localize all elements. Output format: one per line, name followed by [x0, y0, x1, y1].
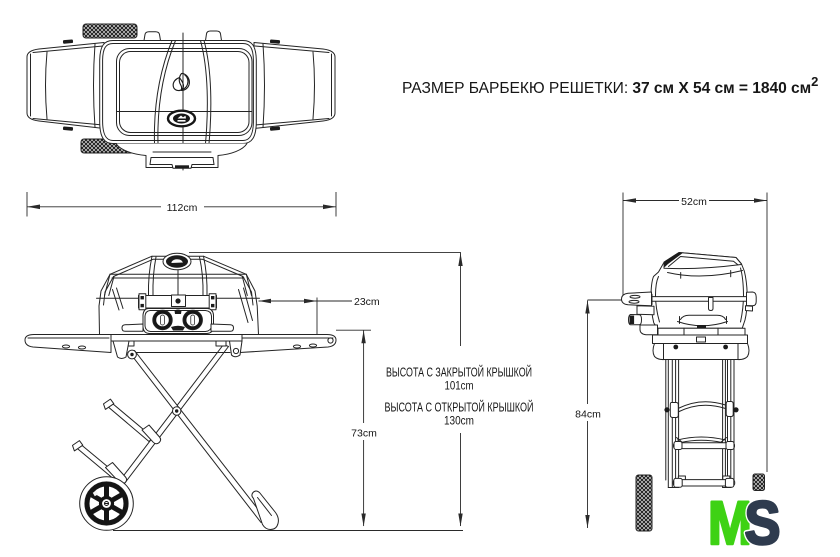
svg-text:23cm: 23cm	[354, 296, 380, 308]
svg-text:ВЫСОТА С ЗАКРЫТОЙ КРЫШКОЙ: ВЫСОТА С ЗАКРЫТОЙ КРЫШКОЙ	[386, 365, 532, 380]
svg-text:84cm: 84cm	[575, 409, 601, 421]
svg-text:ВЫСОТА С ОТКРЫТОЙ КРЫШКОЙ: ВЫСОТА С ОТКРЫТОЙ КРЫШКОЙ	[385, 400, 534, 415]
svg-text:S: S	[745, 489, 781, 557]
svg-text:73cm: 73cm	[351, 428, 377, 440]
svg-text:52cm: 52cm	[681, 196, 707, 208]
svg-text:112cm: 112cm	[167, 202, 198, 214]
svg-text:101cm: 101cm	[445, 379, 474, 393]
svg-text:130cm: 130cm	[444, 414, 474, 428]
